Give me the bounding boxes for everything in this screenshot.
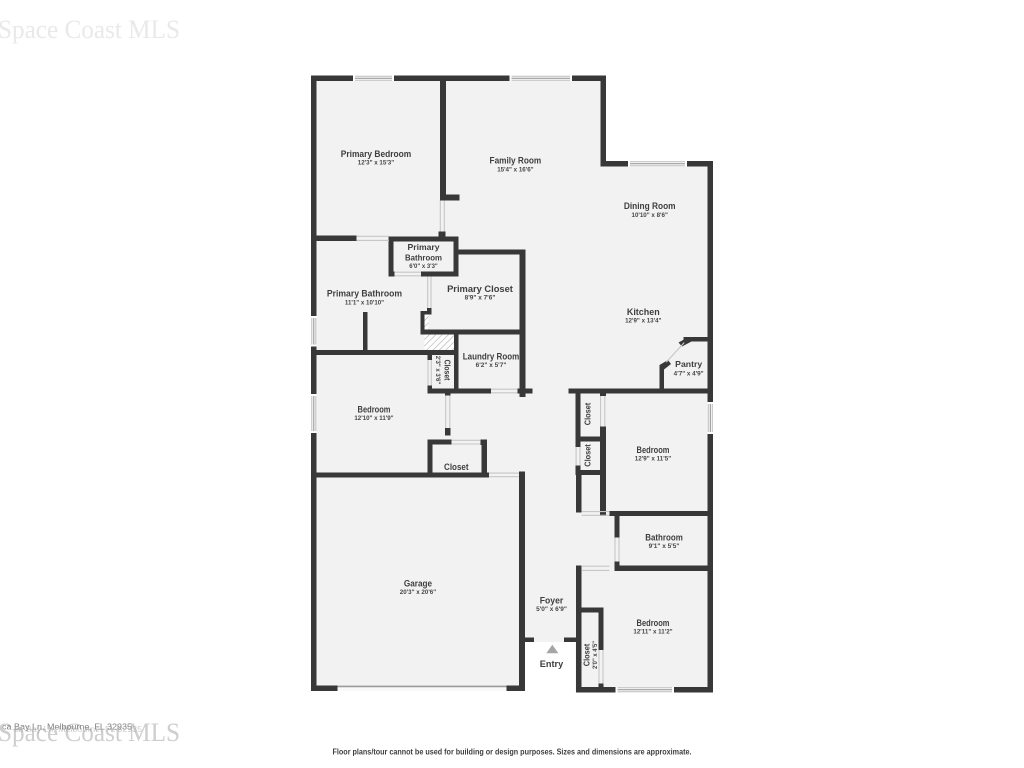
svg-text:12'3" x 15'3": 12'3" x 15'3" — [358, 160, 394, 167]
svg-text:Family Room: Family Room — [490, 156, 542, 166]
svg-text:2'0" x 4'5": 2'0" x 4'5" — [593, 641, 599, 669]
svg-text:12'9" x 11'5": 12'9" x 11'5" — [635, 456, 671, 463]
svg-text:Kitchen: Kitchen — [627, 307, 660, 317]
svg-text:Closet: Closet — [583, 403, 593, 426]
svg-text:Bedroom: Bedroom — [358, 404, 391, 414]
svg-text:11'1" x 10'10": 11'1" x 10'10" — [345, 300, 384, 307]
svg-text:Closet: Closet — [443, 360, 452, 381]
svg-text:Pantry: Pantry — [675, 359, 702, 369]
svg-text:Closet: Closet — [582, 644, 592, 667]
svg-text:Bedroom: Bedroom — [637, 618, 670, 628]
svg-text:5'0" x 6'9": 5'0" x 6'9" — [536, 606, 567, 613]
svg-text:15'4" x 16'6": 15'4" x 16'6" — [497, 166, 533, 173]
svg-text:Primary Bathroom: Primary Bathroom — [327, 289, 402, 299]
svg-text:Closet: Closet — [583, 444, 593, 467]
svg-text:Entry: Entry — [540, 659, 564, 669]
svg-text:12'11" x 11'2": 12'11" x 11'2" — [633, 629, 672, 636]
svg-text:ca Bay Ln, Melbourne, FL 32935: ca Bay Ln, Melbourne, FL 32935 — [14, 725, 143, 734]
svg-text:Bathroom: Bathroom — [405, 252, 442, 262]
svg-text:Closet: Closet — [444, 462, 469, 472]
svg-text:Foyer: Foyer — [540, 595, 564, 605]
svg-text:6'0" x 3'3": 6'0" x 3'3" — [409, 263, 438, 270]
svg-text:4'7" x 4'9": 4'7" x 4'9" — [674, 370, 704, 377]
svg-text:Floor plans/tour cannot be use: Floor plans/tour cannot be used for buil… — [333, 748, 692, 757]
svg-text:10'10" x 8'6": 10'10" x 8'6" — [632, 212, 668, 219]
svg-text:8'9" x 7'6": 8'9" x 7'6" — [465, 295, 496, 302]
svg-text:Bedroom: Bedroom — [637, 445, 670, 455]
svg-text:6'2" x 5'7": 6'2" x 5'7" — [476, 362, 507, 369]
svg-text:2'3" x 3'6": 2'3" x 3'6" — [434, 356, 440, 385]
svg-text:Garage: Garage — [404, 578, 432, 588]
svg-text:12'9" x 13'4": 12'9" x 13'4" — [625, 318, 661, 325]
svg-text:Space Coast MLS: Space Coast MLS — [0, 15, 180, 44]
svg-text:9'1" x 5'5": 9'1" x 5'5" — [649, 543, 680, 550]
svg-text:Primary: Primary — [408, 242, 440, 252]
svg-text:Bathroom: Bathroom — [645, 532, 683, 542]
svg-text:20'3" x 20'6": 20'3" x 20'6" — [400, 589, 436, 596]
svg-text:Dining Room: Dining Room — [624, 201, 676, 211]
svg-text:Primary Bedroom: Primary Bedroom — [341, 149, 412, 159]
svg-text:12'10" x 11'9": 12'10" x 11'9" — [354, 415, 393, 422]
svg-text:Primary Closet: Primary Closet — [447, 284, 513, 294]
svg-text:Laundry Room: Laundry Room — [463, 351, 519, 361]
